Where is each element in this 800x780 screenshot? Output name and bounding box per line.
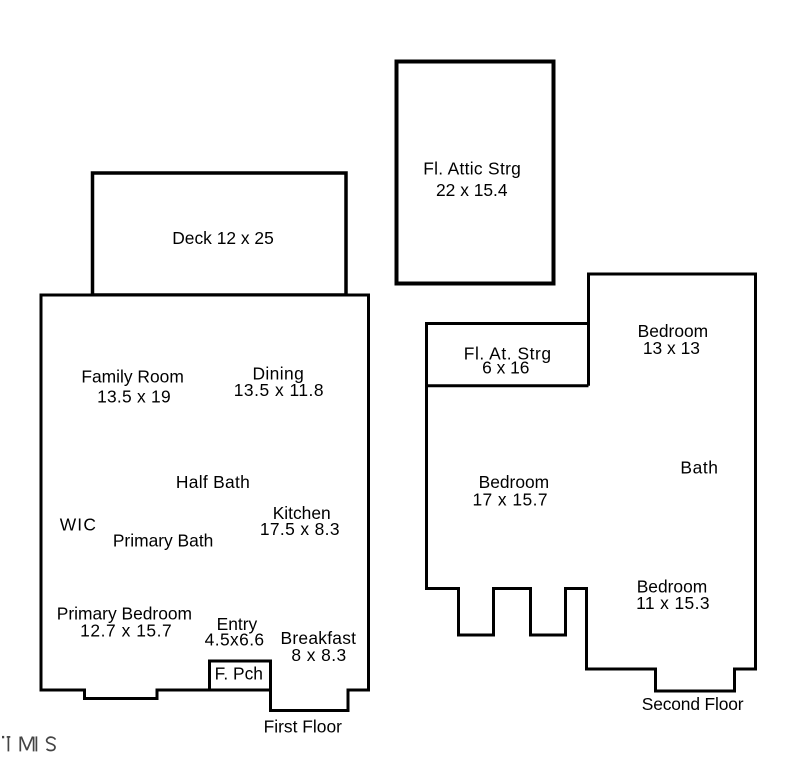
svg-text:First Floor: First Floor <box>264 716 342 736</box>
svg-text:12.7 x 15.7: 12.7 x 15.7 <box>80 621 172 641</box>
svg-text:6 x 16: 6 x 16 <box>482 357 529 377</box>
svg-text:13.5 x 11.8: 13.5 x 11.8 <box>234 380 324 400</box>
svg-text:22 x 15.4: 22 x 15.4 <box>436 180 508 200</box>
svg-text:17.5 x 8.3: 17.5 x 8.3 <box>260 519 340 539</box>
svg-text:Bath: Bath <box>680 458 718 478</box>
svg-text:13.5 x 19: 13.5 x 19 <box>97 386 171 406</box>
svg-text:Fl. Attic Strg: Fl. Attic Strg <box>423 158 521 178</box>
svg-text:Half Bath: Half Bath <box>176 472 250 492</box>
svg-text:11 x 15.3: 11 x 15.3 <box>636 593 710 613</box>
svg-text:Deck 12 x 25: Deck 12 x 25 <box>172 228 274 248</box>
svg-text:Family Room: Family Room <box>81 366 183 386</box>
svg-text:F. Pch: F. Pch <box>215 664 263 684</box>
svg-text:8 x 8.3: 8 x 8.3 <box>291 645 346 665</box>
svg-text:Second Floor: Second Floor <box>642 694 744 714</box>
svg-text:17 x 15.7: 17 x 15.7 <box>472 489 548 509</box>
svg-text:4.5x6.6: 4.5x6.6 <box>205 630 265 650</box>
svg-text:Primary Bath: Primary Bath <box>113 530 214 550</box>
svg-text:13 x 13: 13 x 13 <box>643 338 700 358</box>
svg-text:WIC: WIC <box>60 515 97 535</box>
